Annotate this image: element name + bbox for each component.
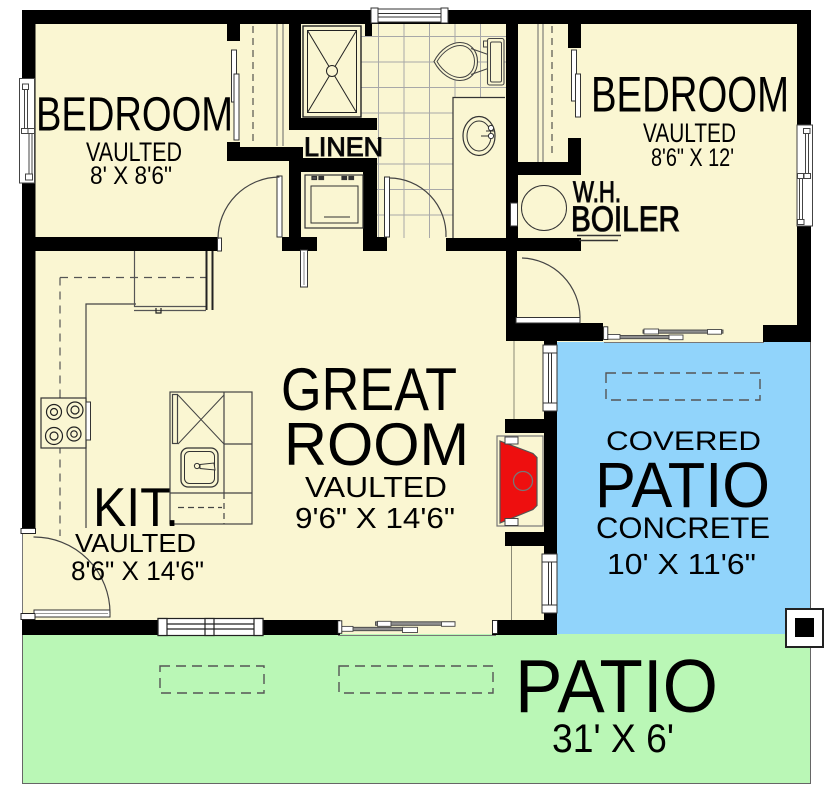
svg-text:CONCRETE: CONCRETE — [596, 512, 770, 545]
svg-text:BEDROOM: BEDROOM — [36, 89, 233, 142]
svg-text:PATIO: PATIO — [595, 449, 770, 521]
svg-text:ROOM: ROOM — [284, 411, 469, 478]
svg-text:BOILER: BOILER — [571, 200, 680, 239]
svg-text:VAULTED: VAULTED — [75, 528, 196, 558]
svg-text:31' X 6': 31' X 6' — [552, 717, 674, 761]
svg-text:LINEN: LINEN — [304, 132, 383, 162]
svg-text:9'6" X 14'6": 9'6" X 14'6" — [295, 503, 455, 535]
svg-text:8'6" X 14'6": 8'6" X 14'6" — [71, 556, 204, 586]
svg-text:10' X 11'6": 10' X 11'6" — [607, 549, 756, 581]
svg-text:8'6" X 12': 8'6" X 12' — [651, 144, 734, 172]
svg-text:BEDROOM: BEDROOM — [591, 67, 789, 123]
svg-text:8' X 8'6": 8' X 8'6" — [90, 162, 172, 190]
svg-text:VAULTED: VAULTED — [305, 472, 447, 504]
svg-text:PATIO: PATIO — [515, 644, 718, 728]
